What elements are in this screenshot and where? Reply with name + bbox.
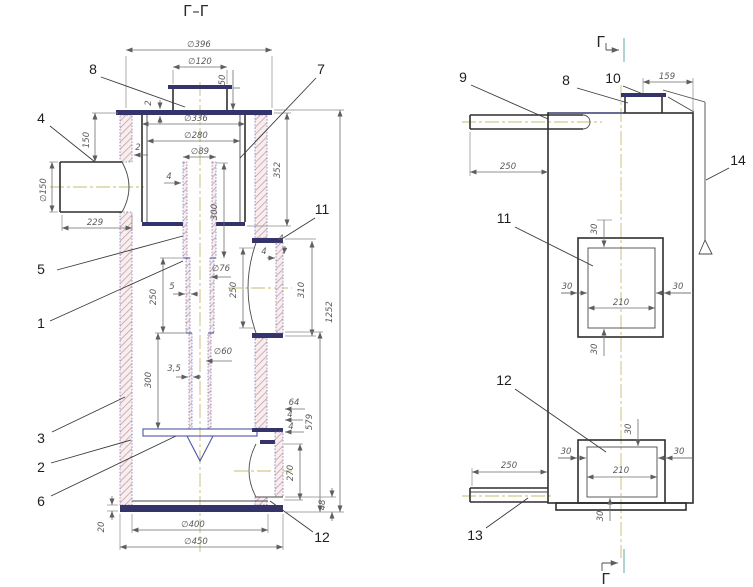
dim-30-lw-left: 30 [561, 447, 572, 457]
dim-dia76: ∅76 [212, 264, 231, 274]
dim-300-lower: 300 [144, 372, 154, 388]
dim-dia120: ∅120 [188, 57, 212, 67]
dim-30-uw-bottom: 30 [590, 344, 600, 355]
dim-270: 270 [286, 465, 296, 481]
section-letter-bottom: Г [601, 570, 610, 587]
technical-drawing-page: Г–Г [0, 0, 753, 587]
callout-11-right: 11 [497, 210, 512, 226]
dim-250-top-pipe: 250 [500, 162, 516, 172]
callout-14: 14 [730, 152, 746, 168]
dim-4-pipe-wall: 4 [166, 172, 171, 182]
left-wall-lower [120, 212, 132, 505]
dim-1252: 1252 [325, 301, 335, 323]
dim-64: 64 [289, 398, 300, 408]
dim-210-lower: 210 [613, 466, 629, 476]
right-wall-middle [255, 338, 267, 428]
dim-30-lw-right: 30 [674, 447, 685, 457]
dim-dia89: ∅89 [191, 147, 209, 157]
nozzle-cap [621, 93, 666, 97]
callout-7: 7 [317, 61, 325, 77]
left-view: Г–Г [37, 2, 344, 552]
callout-8-left: 8 [89, 61, 97, 77]
right-view-centerlines [462, 85, 621, 558]
left-view-shell [60, 85, 283, 512]
callout-6: 6 [37, 493, 45, 509]
dim-dia280: ∅280 [184, 131, 208, 141]
callout-4: 4 [37, 110, 45, 126]
dim-150: 150 [82, 132, 92, 148]
right-view-dimensions: 159 250 30 30 30 210 30 30 30 [470, 72, 693, 521]
right-wall-upper [255, 115, 267, 238]
section-letter-top: Г [596, 33, 605, 51]
dim-2-upper-wall: 2 [135, 143, 140, 153]
dim-30-uw-left: 30 [562, 282, 573, 292]
dim-dia150: ∅150 [39, 178, 49, 202]
left-wall-upper [120, 115, 132, 162]
dim-48: 48 [318, 499, 328, 510]
dim-159: 159 [659, 72, 675, 82]
lower-channel-wall [275, 432, 283, 497]
dim-4-lower-a: 4 [287, 410, 292, 420]
callout-12-left: 12 [314, 529, 330, 545]
callout-9: 9 [459, 69, 467, 85]
callout-5: 5 [37, 261, 45, 277]
callout-12-right: 12 [496, 372, 512, 388]
callout-1: 1 [37, 315, 45, 331]
dim-229: 229 [87, 218, 103, 228]
section-view-title: Г–Г [183, 2, 209, 20]
dim-50: 50 [218, 75, 228, 86]
dim-250-channel: 250 [229, 282, 239, 298]
dim-250-pipe: 250 [149, 289, 159, 305]
dim-30-lw-bottom: 30 [596, 511, 606, 522]
dim-dia60: ∅60 [214, 347, 232, 357]
callout-8-right: 8 [562, 72, 570, 88]
section-marker-top: Г [596, 33, 624, 62]
upper-window-inner [588, 248, 655, 328]
callout-3: 3 [37, 430, 45, 446]
dim-250-bottom-pipe: 250 [501, 461, 517, 471]
upper-window-outer [578, 238, 663, 337]
dim-4-lower-b: 4 [288, 422, 293, 432]
dim-dia450: ∅450 [184, 537, 208, 547]
left-view-dimensions: ∅396 ∅120 50 2 ∅336 ∅280 ∅89 150 2 ∅150 [39, 40, 344, 550]
dim-dia336: ∅336 [184, 114, 208, 124]
cable-hook-triangle [699, 240, 712, 254]
callout-10: 10 [605, 70, 621, 86]
dim-5: 5 [169, 282, 174, 292]
callout-13: 13 [467, 527, 483, 543]
callout-2: 2 [37, 459, 45, 475]
dim-579: 579 [305, 414, 315, 430]
dim-30-lw-top: 30 [624, 424, 634, 435]
bottom-plate [120, 505, 283, 512]
dim-3-5: 3,5 [167, 364, 181, 374]
dim-310: 310 [297, 282, 307, 298]
dim-30-uw-top: 30 [590, 224, 600, 235]
dim-dia396: ∅396 [187, 40, 211, 50]
dim-300-upper: 300 [210, 204, 220, 220]
dim-210-upper: 210 [613, 298, 629, 308]
dim-352: 352 [273, 162, 283, 178]
dim-dia400: ∅400 [181, 520, 205, 530]
upper-channel-wall [276, 243, 283, 333]
dim-20: 20 [97, 522, 107, 533]
dim-30-uw-right: 30 [673, 282, 684, 292]
callout-11-left: 11 [315, 201, 330, 217]
dim-4-channel-a: 4 [261, 247, 266, 257]
dim-2-cap: 2 [144, 100, 154, 105]
vessel-drawing: Г–Г [0, 0, 753, 587]
right-view: Г Г [459, 33, 746, 587]
